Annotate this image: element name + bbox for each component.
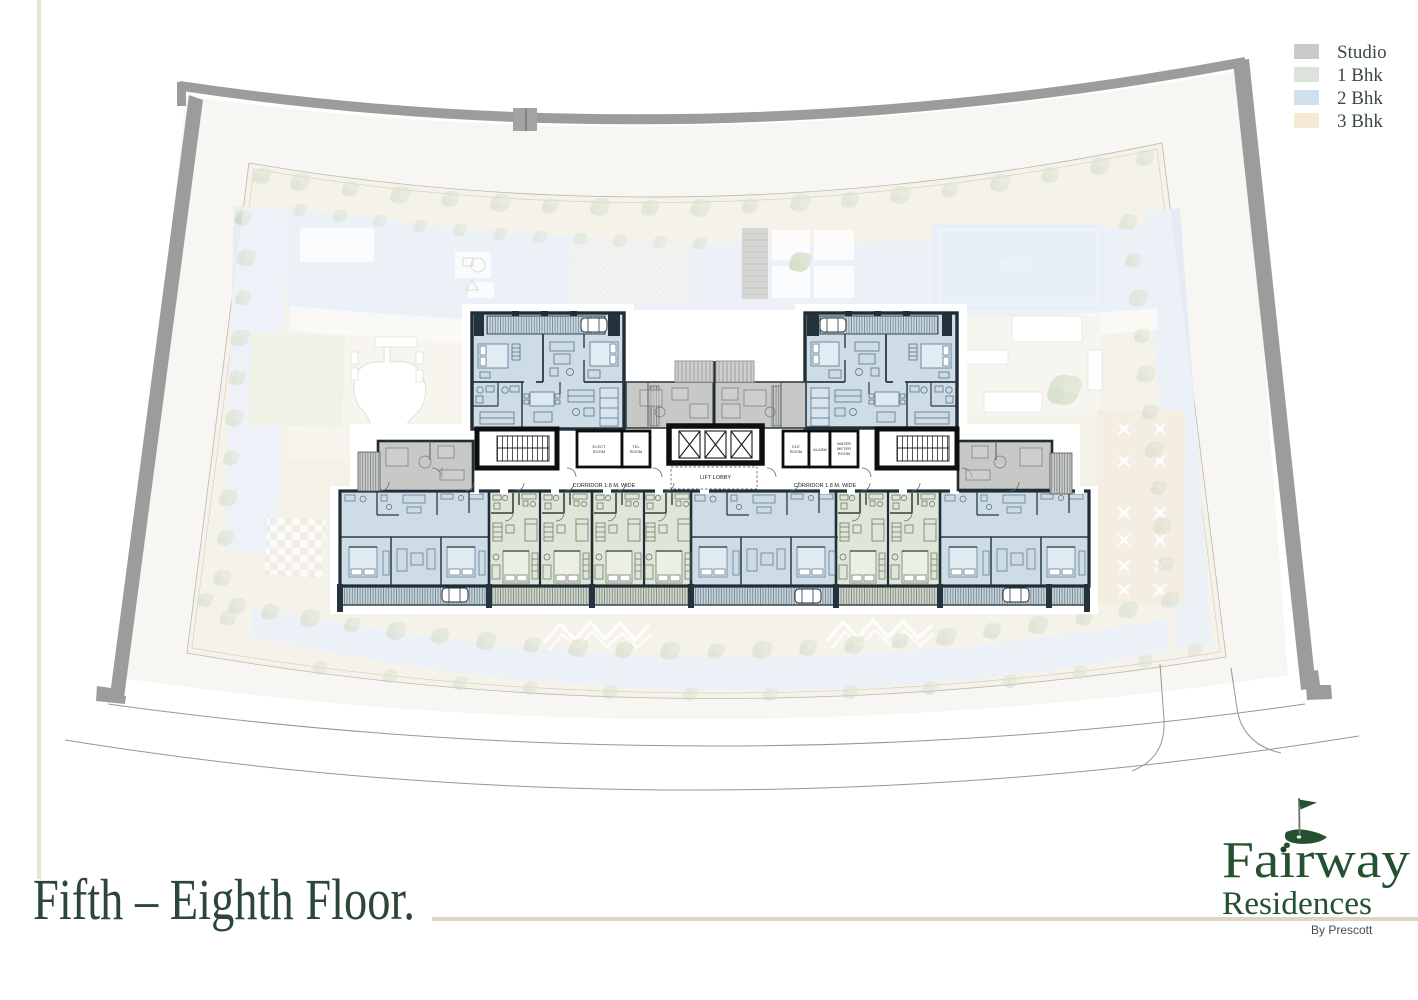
svg-text:Fifth – Eighth Floor.: Fifth – Eighth Floor. — [33, 867, 415, 932]
svg-text:Fairway: Fairway — [1222, 832, 1410, 889]
svg-text:Residences: Residences — [1222, 886, 1372, 922]
svg-text:Studio: Studio — [1337, 42, 1387, 63]
svg-text:ALARM: ALARM — [813, 447, 827, 452]
svg-text:CORRIDOR 1.8 M. WIDE: CORRIDOR 1.8 M. WIDE — [794, 483, 857, 489]
svg-text:1 Bhk: 1 Bhk — [1337, 65, 1383, 86]
svg-text:ROOM: ROOM — [790, 449, 802, 454]
svg-text:LIFT LOBBY: LIFT LOBBY — [700, 475, 731, 481]
svg-text:2 Bhk: 2 Bhk — [1337, 88, 1383, 109]
svg-text:ROOM: ROOM — [593, 449, 605, 454]
svg-text:3 Bhk: 3 Bhk — [1337, 111, 1383, 132]
svg-text:By Prescott: By Prescott — [1311, 923, 1373, 937]
svg-text:ROOM: ROOM — [630, 449, 642, 454]
svg-text:ROOM: ROOM — [838, 451, 850, 456]
